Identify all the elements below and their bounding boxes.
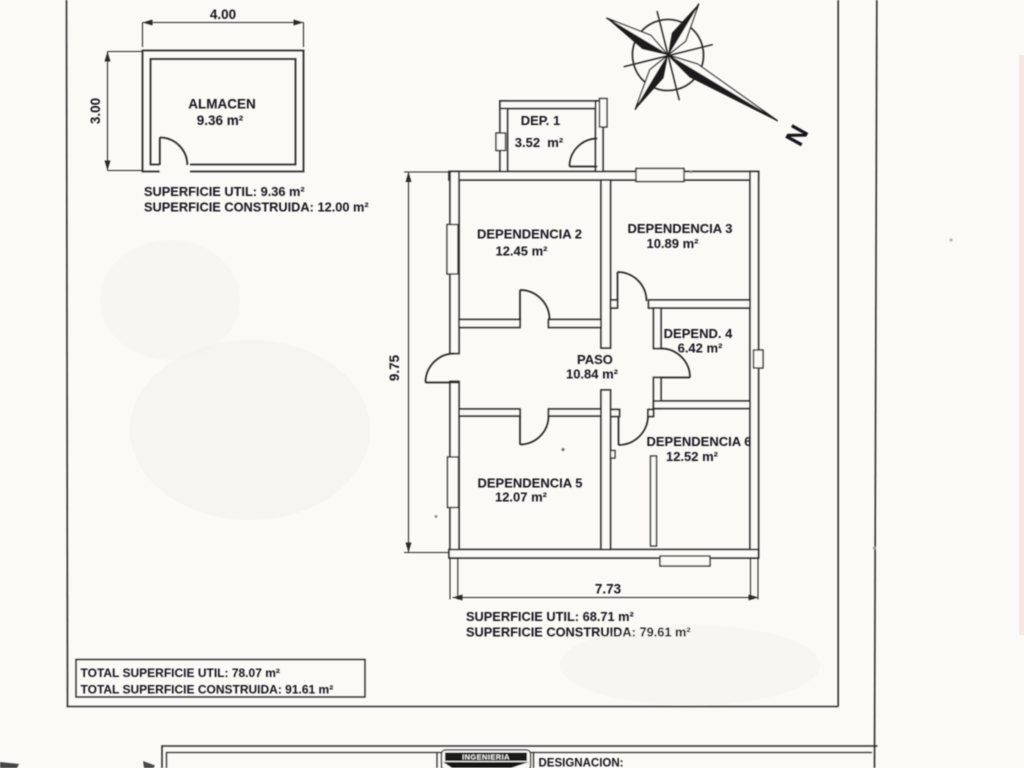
svg-text:DEP. 1: DEP. 1 (521, 113, 561, 128)
svg-text:INGENIERIA: INGENIERIA (462, 753, 510, 762)
svg-text:DEPENDENCIA 6: DEPENDENCIA 6 (647, 434, 752, 449)
svg-text:12.45 m²: 12.45 m² (495, 244, 548, 259)
svg-text:SUPERFICIE UTIL: 68.71 m²: SUPERFICIE UTIL: 68.71 m² (466, 609, 634, 624)
svg-text:PASO: PASO (577, 352, 613, 367)
svg-text:DEPEND. 4: DEPEND. 4 (664, 326, 733, 341)
svg-text:SUPERFICIE CONSTRUIDA: 12.00 m: SUPERFICIE CONSTRUIDA: 12.00 m² (144, 200, 369, 215)
svg-text:12.52 m²: 12.52 m² (666, 449, 719, 464)
svg-text:DESIGNACION:: DESIGNACION: (539, 758, 624, 768)
svg-text:9.75: 9.75 (387, 354, 402, 381)
svg-text:10.84 m²: 10.84 m² (566, 367, 619, 382)
svg-text:DEPENDENCIA 2: DEPENDENCIA 2 (477, 227, 582, 242)
svg-text:TOTAL SUPERFICIE UTIL: 78.07 m: TOTAL SUPERFICIE UTIL: 78.07 m² (81, 666, 280, 680)
svg-text:SUPERFICIE UTIL: 9.36 m²: SUPERFICIE UTIL: 9.36 m² (144, 184, 305, 199)
svg-text:7.73: 7.73 (595, 582, 622, 597)
svg-text:9.36 m²: 9.36 m² (197, 113, 244, 128)
svg-text:DEPENDENCIA 3: DEPENDENCIA 3 (628, 221, 733, 236)
svg-text:4.00: 4.00 (210, 7, 236, 22)
svg-text:3.00: 3.00 (88, 98, 103, 124)
svg-text:6.42 m²: 6.42 m² (678, 341, 723, 356)
svg-text:12.07 m²: 12.07 m² (495, 490, 548, 505)
svg-text:SUPERFICIE CONSTRUIDA: 79.61 m: SUPERFICIE CONSTRUIDA: 79.61 m² (466, 625, 691, 640)
svg-text:ALMACEN: ALMACEN (188, 97, 256, 112)
svg-text:DEPENDENCIA 5: DEPENDENCIA 5 (478, 476, 583, 491)
svg-text:10.89 m²: 10.89 m² (646, 236, 699, 251)
svg-text:3.52 m²: 3.52 m² (515, 135, 564, 150)
svg-text:TOTAL SUPERFICIE CONSTRUIDA: 9: TOTAL SUPERFICIE CONSTRUIDA: 91.61 m² (81, 683, 334, 697)
